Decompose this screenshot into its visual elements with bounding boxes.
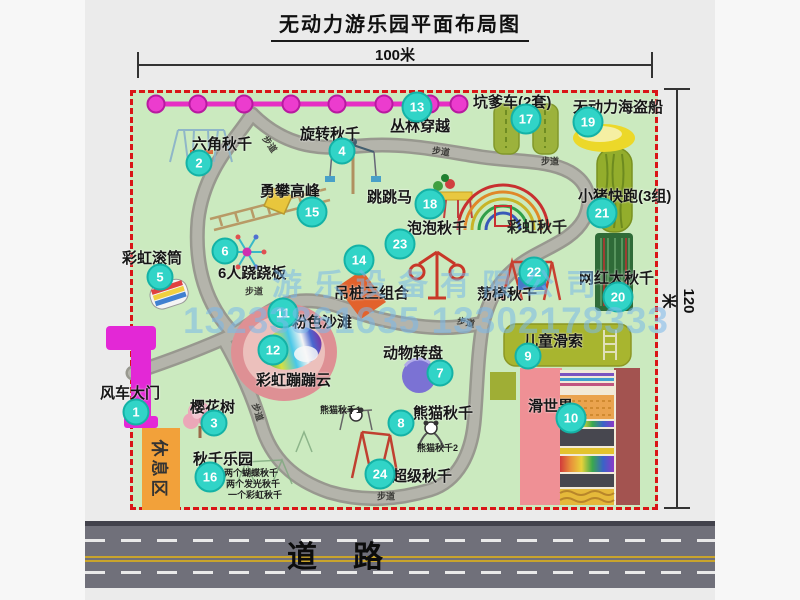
item-marker-7: 7 <box>427 360 454 387</box>
item-label-18: 跳跳马 <box>367 186 412 207</box>
item-marker-10: 10 <box>556 403 587 434</box>
item-marker-9: 9 <box>515 343 542 370</box>
item-marker-6: 6 <box>212 238 239 265</box>
path-label-2: 步道 <box>541 155 559 168</box>
sub-label-1: 熊猫秋千1 <box>320 403 361 416</box>
path-label-0: 步道 <box>260 133 281 155</box>
item-marker-1: 1 <box>123 399 150 426</box>
path-label-3: 步道 <box>245 285 263 298</box>
item-label-17: 坑爹车(2套) <box>473 91 551 112</box>
item-label-8: 熊猫秋千 <box>413 402 473 423</box>
item-marker-17: 17 <box>511 104 542 135</box>
item-label-24: 超级秋千 <box>392 465 452 486</box>
path-label-1: 步道 <box>431 143 451 158</box>
item-marker-2: 2 <box>186 150 213 177</box>
path-label-6: 步道 <box>377 490 395 503</box>
watermark-phone: 13233861635 13302178333 <box>183 300 669 342</box>
sub-label-2: 熊猫秋千2 <box>417 441 458 454</box>
item-marker-23: 23 <box>385 229 416 260</box>
item-marker-3: 3 <box>201 410 228 437</box>
item-marker-15: 15 <box>297 197 328 228</box>
item-marker-16: 16 <box>195 462 226 493</box>
item-marker-18: 18 <box>415 189 446 220</box>
watermark-company: 游乐设备有限公司 <box>272 260 608 304</box>
item-marker-21: 21 <box>587 198 618 229</box>
item-marker-5: 5 <box>147 264 174 291</box>
playground-plan-poster: 无动力游乐园平面布局图 100米 120米 <box>0 0 800 600</box>
sub-label-5: 一个彩虹秋千 <box>228 488 282 501</box>
path-label-5: 步道 <box>249 401 267 422</box>
item-marker-24: 24 <box>365 459 396 490</box>
item-marker-8: 8 <box>388 410 415 437</box>
item-marker-19: 19 <box>573 107 604 138</box>
item-label-12: 彩虹蹦蹦云 <box>256 369 331 390</box>
item-marker-13: 13 <box>402 92 433 123</box>
item-marker-4: 4 <box>329 138 356 165</box>
item-label-23: 泡泡秋千 <box>407 217 467 238</box>
sub-label-0: 彩虹秋千 <box>507 216 567 237</box>
